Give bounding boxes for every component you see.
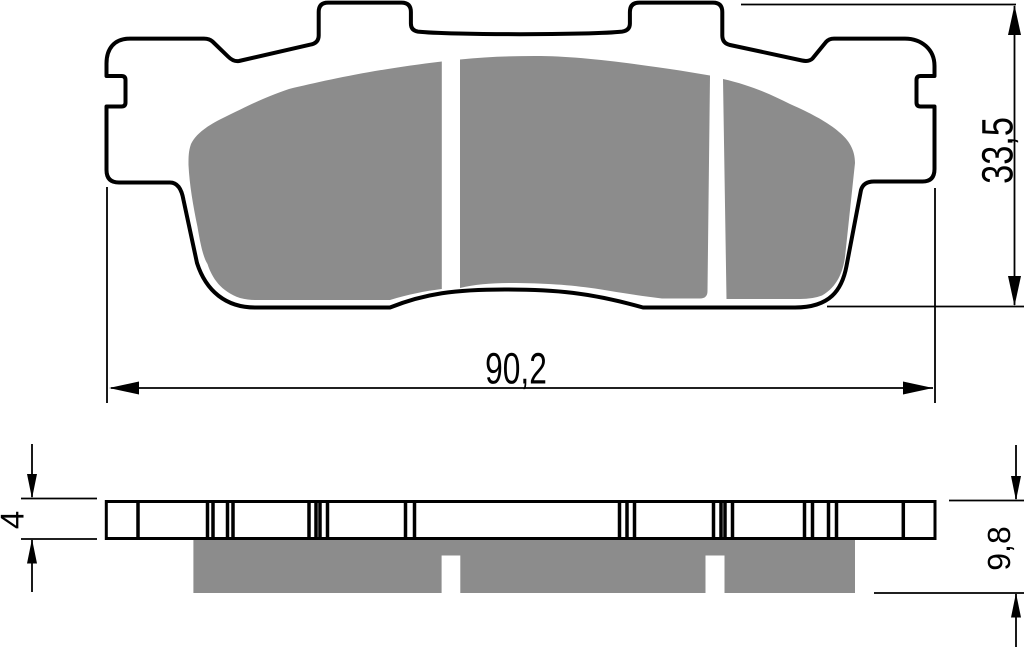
svg-text:4: 4 [0,511,31,529]
svg-text:90,2: 90,2 [485,345,547,394]
svg-text:33,5: 33,5 [974,117,1023,184]
svg-text:9,8: 9,8 [981,526,1017,570]
